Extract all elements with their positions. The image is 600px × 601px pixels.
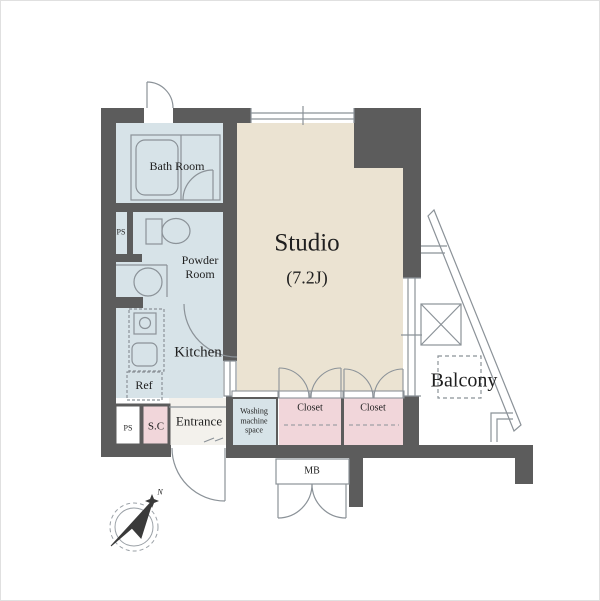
wall-ps-nook-side <box>127 211 133 258</box>
label-balcony: Balcony <box>431 370 498 393</box>
wall-east-upper <box>403 168 421 278</box>
label-meter-box: MB <box>304 465 320 477</box>
label-studio-size: (7.2J) <box>286 268 328 289</box>
label-washing-line2: machine <box>240 416 268 426</box>
mb-door-arc-a <box>278 484 312 518</box>
label-closet-left: Closet <box>297 402 323 414</box>
compass-needle <box>111 500 153 546</box>
label-washing-space: Washing machine space <box>240 407 268 436</box>
floorplan-drawing <box>1 1 600 601</box>
floorplan-page: Studio (7.2J) Bath Room Powder Room Kitc… <box>0 0 600 601</box>
wall-north-a <box>101 108 144 123</box>
door-opening-north <box>144 108 173 123</box>
wall-closet-divider <box>341 398 344 448</box>
label-powder-line1: Powder <box>182 254 219 268</box>
mb-door-arc-b <box>312 484 346 518</box>
wall-powder-kitchen-stub <box>115 297 143 308</box>
wall-north-b <box>173 108 251 123</box>
label-kitchen: Kitchen <box>174 344 221 361</box>
wall-south-end-block <box>515 458 533 484</box>
label-entrance: Entrance <box>176 415 222 430</box>
label-closet-right: Closet <box>360 402 386 414</box>
wall-ps-nook-bottom <box>114 254 142 262</box>
label-ps-lower: PS <box>124 423 133 432</box>
label-bath-room: Bath Room <box>149 160 204 174</box>
wall-south-main <box>226 445 533 458</box>
label-washing-line1: Washing <box>240 407 268 417</box>
label-shoe-closet: S.C <box>148 421 164 434</box>
label-compass-north: N <box>157 487 162 496</box>
wall-south-left <box>101 445 171 457</box>
wall-mb-stub <box>349 457 363 507</box>
label-washing-line3: space <box>240 426 268 436</box>
balcony-area <box>421 210 521 442</box>
door-north-swing <box>147 82 173 108</box>
label-studio: Studio <box>274 230 339 259</box>
window-east <box>403 278 421 396</box>
label-powder-line2: Room <box>182 268 219 282</box>
wall-northeast-pillar <box>354 108 421 168</box>
closet-track <box>232 391 404 398</box>
wall-bath-powder <box>115 203 223 212</box>
wall-studio-west <box>223 123 237 361</box>
label-ref: Ref <box>135 379 152 393</box>
label-ps-upper: PS <box>117 227 126 236</box>
door-opening-entrance <box>171 445 226 458</box>
label-powder-room: Powder Room <box>182 254 219 282</box>
compass-rose <box>110 494 159 551</box>
